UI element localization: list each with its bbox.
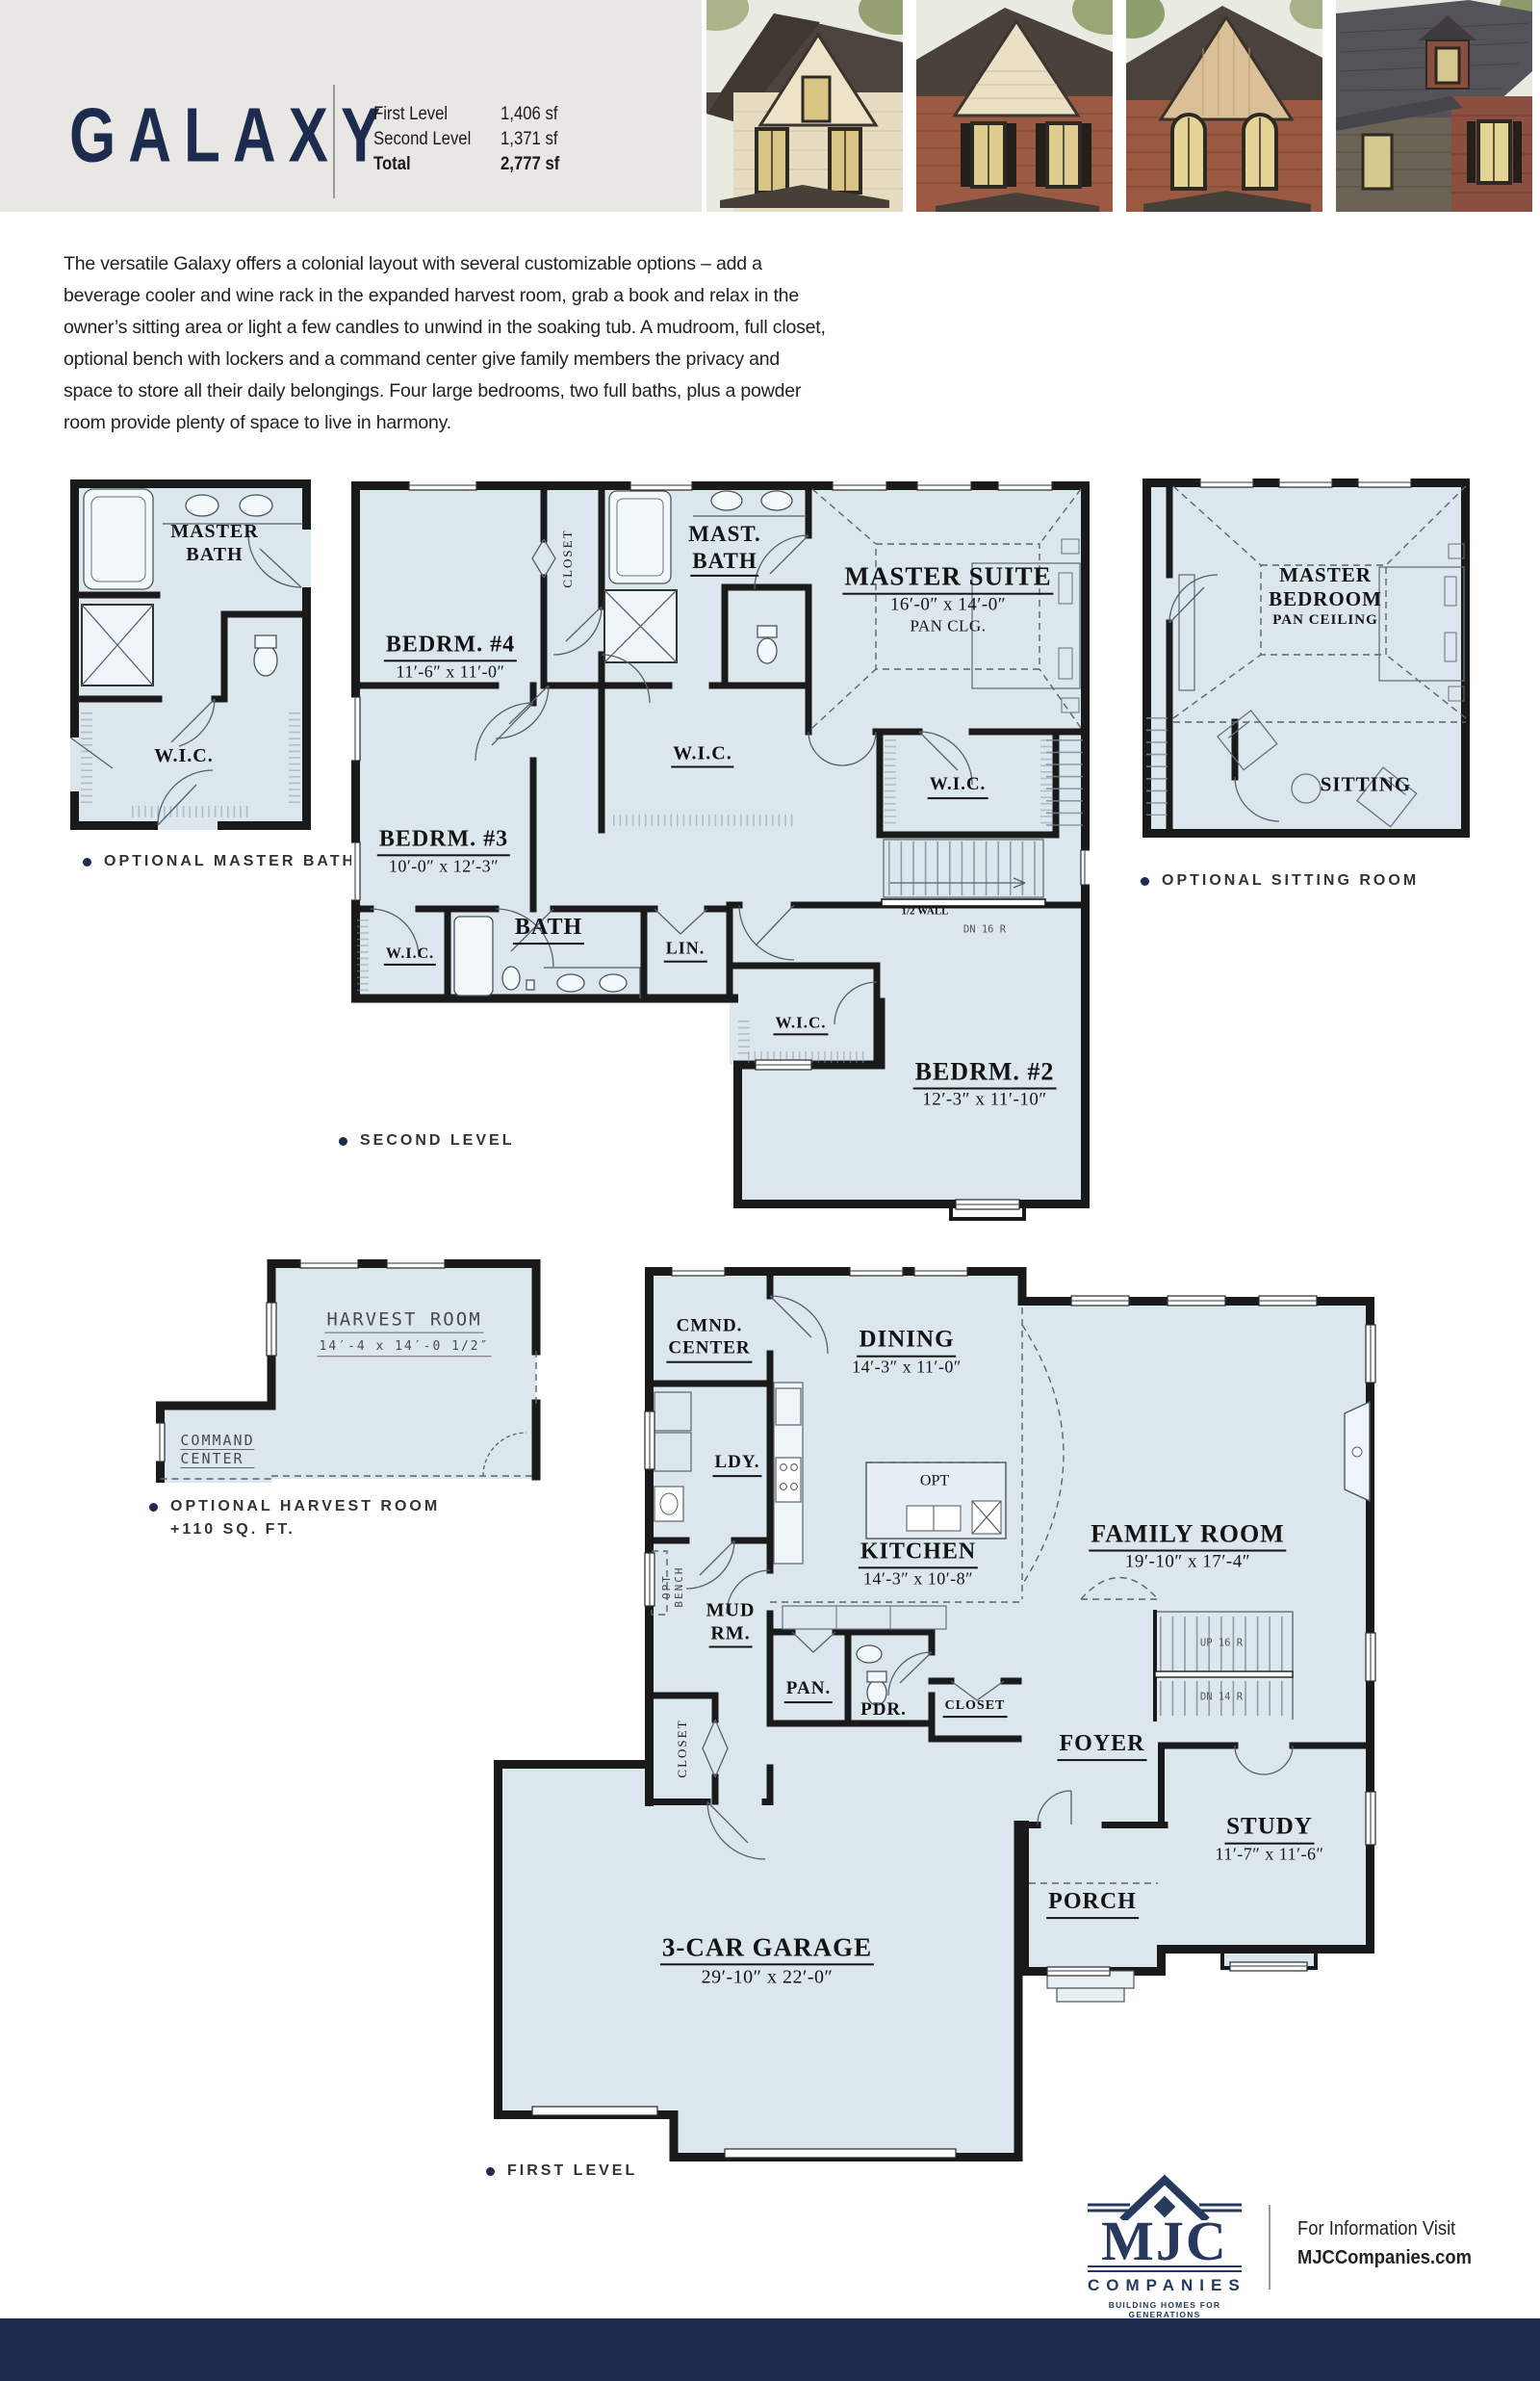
- room-label-command-2: CENTER: [180, 1450, 254, 1468]
- room-dims-dining: 14′-3″ x 11′-0″: [852, 1358, 962, 1379]
- stat-label: Second Level: [373, 127, 500, 152]
- room-label-bedrm3: BEDRM. #3: [377, 825, 510, 856]
- optional-master-bath-caption: OPTIONAL MASTER BATH: [83, 853, 356, 870]
- room-label-cmnd: CMND.: [666, 1316, 752, 1338]
- brochure-page: GALAXY First Level 1,406 sf Second Level…: [0, 0, 1540, 2381]
- house-elevation-1-art: [706, 0, 903, 212]
- area-stats: First Level 1,406 sf Second Level 1,371 …: [373, 102, 559, 177]
- stat-row: Second Level 1,371 sf: [373, 127, 559, 152]
- mjc-logo: MJC COMPANIES BUILDING HOMES FOR GENERAT…: [1088, 2172, 1242, 2313]
- optional-harvest-caption: OPTIONAL HARVEST ROOM +110 SQ. FT.: [149, 1498, 440, 1539]
- house-elevation-4: [1336, 0, 1532, 212]
- stat-value: 1,371 sf: [500, 127, 559, 152]
- annotation-dn14: DN 14 R: [1200, 1692, 1243, 1703]
- room-label-master-suite: MASTER SUITE: [842, 561, 1053, 595]
- house-elevation-3-art: [1126, 0, 1322, 212]
- room-label-master-bath-2: BATH: [170, 543, 259, 566]
- bullet-icon: [339, 1137, 347, 1146]
- first-level-plan: CMND. CENTER DINING 14′-3″ x 11′-0″ FAMI…: [494, 1267, 1384, 2182]
- room-label-pdr: PDR.: [859, 1699, 909, 1724]
- room-dims-harvest: 14′-4 x 14′-0 1/2″: [318, 1339, 492, 1357]
- first-level-graphic: [494, 1267, 1384, 2182]
- second-level-plan: BEDRM. #4 11′-6″ x 11′-0″ CLOSET MAST. B…: [351, 481, 1090, 1229]
- room-label-mud-2: RM.: [708, 1622, 752, 1648]
- footer-info-line2: MJCCompanies.com: [1297, 2243, 1472, 2272]
- room-label-kitchen: KITCHEN: [859, 1538, 978, 1568]
- stat-row: First Level 1,406 sf: [373, 102, 559, 127]
- room-label-mud: MUD: [706, 1599, 756, 1622]
- room-label-lin: LIN.: [664, 939, 707, 963]
- room-label-closet: CLOSET: [560, 529, 575, 587]
- stat-row-total: Total 2,777 sf: [373, 152, 559, 177]
- stat-value: 1,406 sf: [500, 102, 559, 127]
- annotation-up16: UP 16 R: [1200, 1638, 1243, 1649]
- room-label-wic-master: W.I.C.: [928, 774, 988, 799]
- optional-harvest-caption-line2: +110 SQ. FT.: [170, 1521, 440, 1539]
- room-label-closet-vertical: CLOSET: [675, 1719, 689, 1777]
- room-dims-garage: 29′-10″ x 22′-0″: [660, 1966, 874, 1989]
- room-label-study: STUDY: [1224, 1813, 1315, 1845]
- room-label-garage: 3-CAR GARAGE: [660, 1931, 874, 1965]
- house-elevation-2: [916, 0, 1113, 212]
- room-label-cmnd-2: CENTER: [666, 1338, 752, 1363]
- room-dims-master-suite: 16′-0″ x 14′-0″: [842, 595, 1053, 617]
- room-label-wic-bedrm2: W.I.C.: [773, 1013, 828, 1035]
- room-label-wic-small: W.I.C.: [384, 945, 436, 966]
- room-dims-study: 11′-7″ x 11′-6″: [1215, 1845, 1323, 1866]
- room-dims-kitchen: 14′-3″ x 10′-8″: [859, 1568, 978, 1590]
- mjc-logo-companies: COMPANIES: [1088, 2276, 1242, 2295]
- mjc-logo-text: MJC: [1088, 2220, 1242, 2263]
- room-label-master-bath: MASTER: [170, 520, 259, 543]
- room-label-dining: DINING: [857, 1326, 956, 1358]
- room-dims-bedrm4: 11′-6″ x 11′-0″: [384, 661, 517, 683]
- room-label-sitting: SITTING: [1321, 772, 1412, 796]
- room-label-ldy: LDY.: [712, 1452, 761, 1477]
- room-label-wic-center: W.I.C.: [671, 742, 733, 768]
- room-dims-bedrm2: 12′-3″ x 11′-10″: [913, 1090, 1057, 1112]
- optional-harvest-room-plan: HARVEST ROOM 14′-4 x 14′-0 1/2″ COMMAND …: [156, 1259, 541, 1483]
- mjc-logo-tagline: BUILDING HOMES FOR GENERATIONS: [1088, 2300, 1242, 2319]
- intro-paragraph: The versatile Galaxy offers a colonial l…: [64, 248, 834, 439]
- house-elevation-4-art: [1336, 0, 1532, 212]
- bullet-icon: [1141, 877, 1149, 886]
- room-sub-master-suite: PAN CLG.: [842, 617, 1053, 636]
- house-elevation-2-art: [916, 0, 1113, 212]
- room-sub-pan-ceiling: PAN CEILING: [1269, 611, 1382, 629]
- bullet-icon: [486, 2167, 495, 2176]
- room-label-mast-bath-2: BATH: [690, 548, 758, 578]
- annotation-opt-bench-2: BENCH: [673, 1566, 685, 1607]
- room-label-bedrm4: BEDRM. #4: [384, 631, 517, 661]
- house-elevation-3: [1126, 0, 1322, 212]
- mjc-logo-roof-icon: [1088, 2172, 1242, 2220]
- room-label-master-bedroom: MASTER: [1269, 563, 1382, 587]
- room-label-harvest: HARVEST ROOM: [324, 1309, 483, 1333]
- room-dims-bedrm3: 10′-0″ x 12′-3″: [377, 856, 510, 877]
- optional-sitting-room-graphic: [1142, 479, 1470, 838]
- bullet-icon: [83, 858, 91, 867]
- room-label-family: FAMILY ROOM: [1089, 1519, 1286, 1552]
- footer-info-line1: For Information Visit: [1297, 2214, 1472, 2243]
- footer-navy-bar: [0, 2318, 1540, 2381]
- room-label-master-bedroom-2: BEDROOM: [1269, 587, 1382, 611]
- footer-divider: [1269, 2205, 1270, 2290]
- stat-label: First Level: [373, 102, 500, 127]
- stat-value: 2,777 sf: [500, 152, 559, 177]
- bullet-icon: [149, 1503, 158, 1512]
- footer-info: For Information Visit MJCCompanies.com: [1297, 2214, 1472, 2272]
- annotation-dn16: DN 16 R: [963, 924, 1006, 936]
- island-label-opt: OPT: [920, 1472, 949, 1488]
- optional-master-bath-plan: MASTER BATH W.I.C.: [70, 479, 311, 830]
- stat-label: Total: [373, 152, 500, 177]
- room-label-closet-hall: CLOSET: [943, 1698, 1008, 1718]
- room-label-porch: PORCH: [1046, 1888, 1139, 1919]
- room-label-pan: PAN.: [784, 1678, 833, 1703]
- room-label-mast-bath: MAST.: [688, 521, 761, 548]
- second-level-caption: SECOND LEVEL: [339, 1132, 514, 1150]
- room-label-foyer: FOYER: [1058, 1730, 1147, 1761]
- optional-sitting-room-caption: OPTIONAL SITTING ROOM: [1141, 872, 1419, 890]
- room-label-wic: W.I.C.: [154, 744, 213, 767]
- house-elevation-1: [706, 0, 903, 212]
- room-label-command: COMMAND: [180, 1432, 254, 1450]
- optional-sitting-room-plan: MASTER BEDROOM PAN CEILING SITTING: [1142, 479, 1470, 838]
- annotation-half-wall: 1/2 WALL: [901, 905, 948, 917]
- room-label-bath: BATH: [513, 914, 584, 945]
- room-label-bedrm2: BEDRM. #2: [913, 1057, 1057, 1090]
- page-title: GALAXY: [69, 92, 393, 180]
- first-level-caption: FIRST LEVEL: [486, 2162, 637, 2180]
- header-divider: [333, 85, 335, 198]
- room-dims-family: 19′-10″ x 17′-4″: [1089, 1552, 1286, 1574]
- annotation-opt-bench: OPT: [660, 1566, 673, 1607]
